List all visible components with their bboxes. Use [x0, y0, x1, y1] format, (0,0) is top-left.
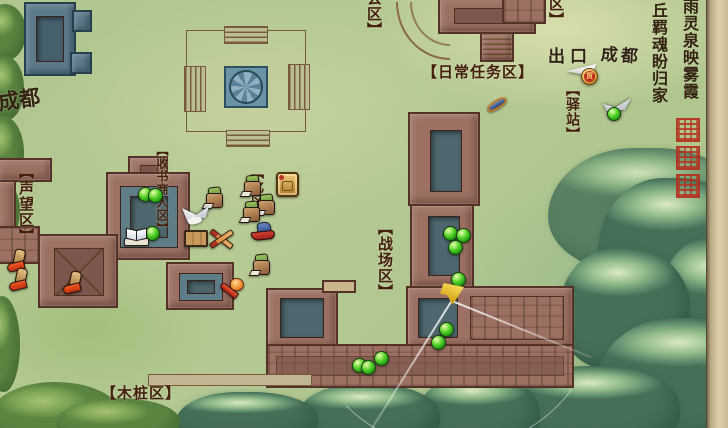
courtyard-inner [187, 280, 215, 294]
seal-block [676, 146, 700, 170]
building-blue-wing [70, 52, 92, 74]
label-city-right: 成都 [600, 40, 642, 68]
label-reputation-area: 【声望区】 [18, 164, 33, 244]
label-city-left: 成都 [0, 81, 42, 117]
building-courtyard [280, 298, 324, 338]
label-partial-top-right: 区】 [548, 0, 563, 28]
gold-armor-icon[interactable] [276, 172, 299, 197]
green-orb-icon[interactable] [374, 351, 389, 366]
label-partial-top-center: 会区】 [366, 0, 381, 38]
sack-cloth [240, 191, 253, 197]
crossed-banners-icon[interactable] [206, 225, 238, 253]
green-orb-icon[interactable] [148, 188, 163, 203]
blue-boot-icon[interactable] [251, 222, 277, 242]
orb [607, 107, 621, 121]
crate-icon[interactable] [184, 230, 208, 247]
book-icon[interactable] [124, 228, 150, 247]
label-wooden-dummy-area: 【木桩区】 [101, 382, 181, 403]
armor-plate [282, 181, 293, 191]
building-courtyard [36, 16, 64, 62]
red-seal-stamp [675, 118, 702, 200]
building-courtyard [430, 130, 462, 192]
building-south-west-block [266, 288, 338, 350]
sack-cloth [239, 217, 252, 223]
building-north-annex [480, 32, 514, 62]
goods-sack-icon[interactable] [242, 201, 262, 223]
label-daily-quest-area: 【日常任务区】 [422, 61, 534, 82]
leather-boot-icon[interactable] [9, 268, 31, 294]
goods-sack-icon[interactable] [252, 254, 272, 276]
plaza-fountain [224, 66, 268, 108]
club-shaft [485, 95, 508, 114]
building-blue-hall [24, 2, 76, 76]
forest-left [0, 4, 26, 60]
building-east-upper [408, 112, 480, 206]
seal-block [676, 118, 700, 142]
blue-club-icon[interactable] [485, 95, 511, 115]
green-orb-icon[interactable] [361, 360, 376, 375]
player-arrow [440, 283, 464, 305]
winged-orb-icon[interactable] [601, 98, 635, 124]
poem-column-left: 丘羁魂盼归家 [650, 2, 666, 124]
seal-block [676, 174, 700, 198]
red-blade-icon[interactable] [219, 277, 247, 303]
forest-left [0, 296, 20, 392]
plaza-stairs-east [288, 64, 310, 110]
badge-character: 货 [584, 71, 595, 82]
green-orb-icon[interactable] [448, 240, 463, 255]
label-post-station: 【驿站】 [565, 82, 579, 142]
sack-cloth [249, 270, 262, 276]
boot-foot [62, 282, 82, 295]
map-edge [706, 0, 728, 428]
player-arrow-icon [440, 283, 464, 305]
building-north-east [502, 0, 546, 24]
building-courtyard [179, 273, 223, 301]
label-battlefield-area: 【战场区】 [377, 220, 392, 300]
mountains-bottom [176, 392, 318, 428]
leather-boot-icon[interactable] [63, 271, 85, 297]
gate-north [322, 280, 356, 293]
plaza-stairs-west [184, 66, 206, 112]
poem-column-right: 雨灵泉映雾霞 [681, 0, 697, 122]
game-world-map: 成都 会区】 区】 【日常任务区】 出口 成都 【驿站】 【声望区】 【收书商人… [0, 0, 728, 428]
book-page-right [136, 228, 147, 241]
boot-foot [8, 279, 28, 292]
fountain-wheel [229, 70, 263, 104]
building-blue-wing [72, 10, 92, 32]
armor-gem [279, 175, 284, 180]
boot-sole [251, 230, 276, 241]
plaza-stairs-north [224, 26, 268, 44]
flag-badge-icon[interactable]: 货 [566, 62, 600, 88]
plaza-stairs-south [226, 130, 270, 147]
